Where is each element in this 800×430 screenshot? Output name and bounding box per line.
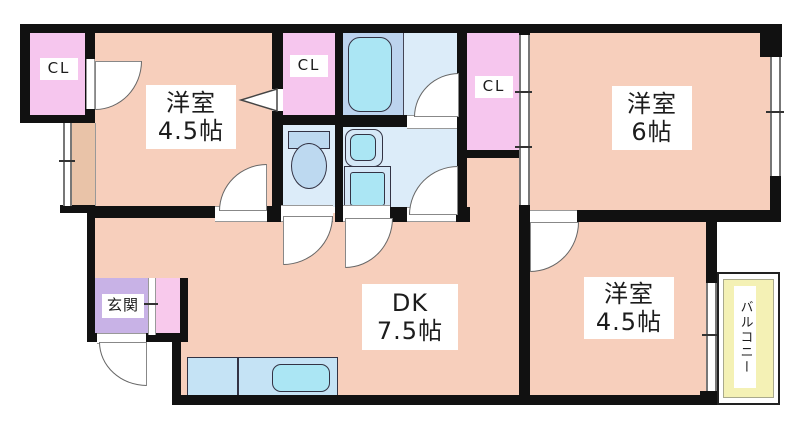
wall [95, 206, 215, 218]
window-bedroom3-balcony [706, 283, 717, 391]
sliding-door-bedroom2 [519, 35, 530, 205]
wall [60, 205, 95, 213]
room-size: 4.5帖 [158, 117, 224, 145]
closet2-label: CL [290, 55, 328, 77]
room-name: 洋室 [604, 280, 654, 308]
window-tick [766, 111, 784, 113]
folding-door-arrow-icon [238, 86, 278, 114]
wall [20, 24, 30, 123]
door-swing-entrance [99, 342, 147, 386]
doorway-bathroom [407, 115, 457, 129]
toilet-bowl [291, 143, 327, 189]
wall [770, 176, 781, 222]
wall [457, 24, 467, 222]
wall [467, 150, 519, 158]
wall [20, 24, 782, 33]
closet3-label: CL [475, 76, 513, 98]
kitchen-counter-divider [237, 357, 239, 395]
genkan-step [148, 278, 156, 335]
sliding-door-tick [515, 91, 532, 93]
wall [706, 222, 717, 283]
wall [577, 210, 770, 222]
wall [335, 24, 343, 222]
room-size: 6帖 [631, 118, 672, 146]
wall [519, 205, 530, 222]
room-name: DK [392, 289, 428, 317]
wall [700, 391, 718, 405]
room-size: 7.5帖 [377, 317, 443, 345]
bedroom3-label: 洋室 4.5帖 [584, 277, 674, 339]
genkan-step-tick [144, 303, 158, 305]
shoe-area [156, 278, 180, 335]
bedroom1-label: 洋室 4.5帖 [146, 85, 236, 149]
room-size: 4.5帖 [596, 308, 662, 336]
balcony-label: バルコニー [734, 286, 756, 388]
wall [519, 24, 530, 35]
wall [172, 395, 720, 405]
room-name: 洋室 [166, 89, 216, 117]
closet1-label: CL [40, 58, 78, 80]
wall [272, 115, 343, 125]
wall [456, 207, 470, 222]
window-bedroom2 [770, 57, 781, 176]
floorplan: CL 洋室 4.5帖 CL CL 洋室 6帖 DK 7.5帖 洋室 4.5帖 玄… [0, 0, 800, 430]
bathtub [348, 37, 392, 112]
dk-label: DK 7.5帖 [362, 284, 458, 350]
window-bedroom1 [63, 123, 72, 206]
bedroom1-bay-floor [72, 123, 96, 206]
washing-machine [350, 172, 385, 206]
kitchen-sink [272, 364, 330, 392]
genkan-label: 玄関 [102, 294, 144, 318]
wall [180, 278, 188, 342]
window-tick [59, 160, 75, 162]
room-name: 洋室 [627, 90, 677, 118]
washbasin-bowl [350, 134, 376, 161]
wall [343, 115, 407, 127]
sliding-door-tick [515, 146, 532, 148]
bedroom2-label: 洋室 6帖 [612, 86, 692, 150]
wall [87, 213, 95, 342]
wall [770, 24, 781, 58]
door-leaf-closet1 [86, 59, 95, 109]
wall [519, 222, 530, 405]
wall [20, 115, 95, 123]
